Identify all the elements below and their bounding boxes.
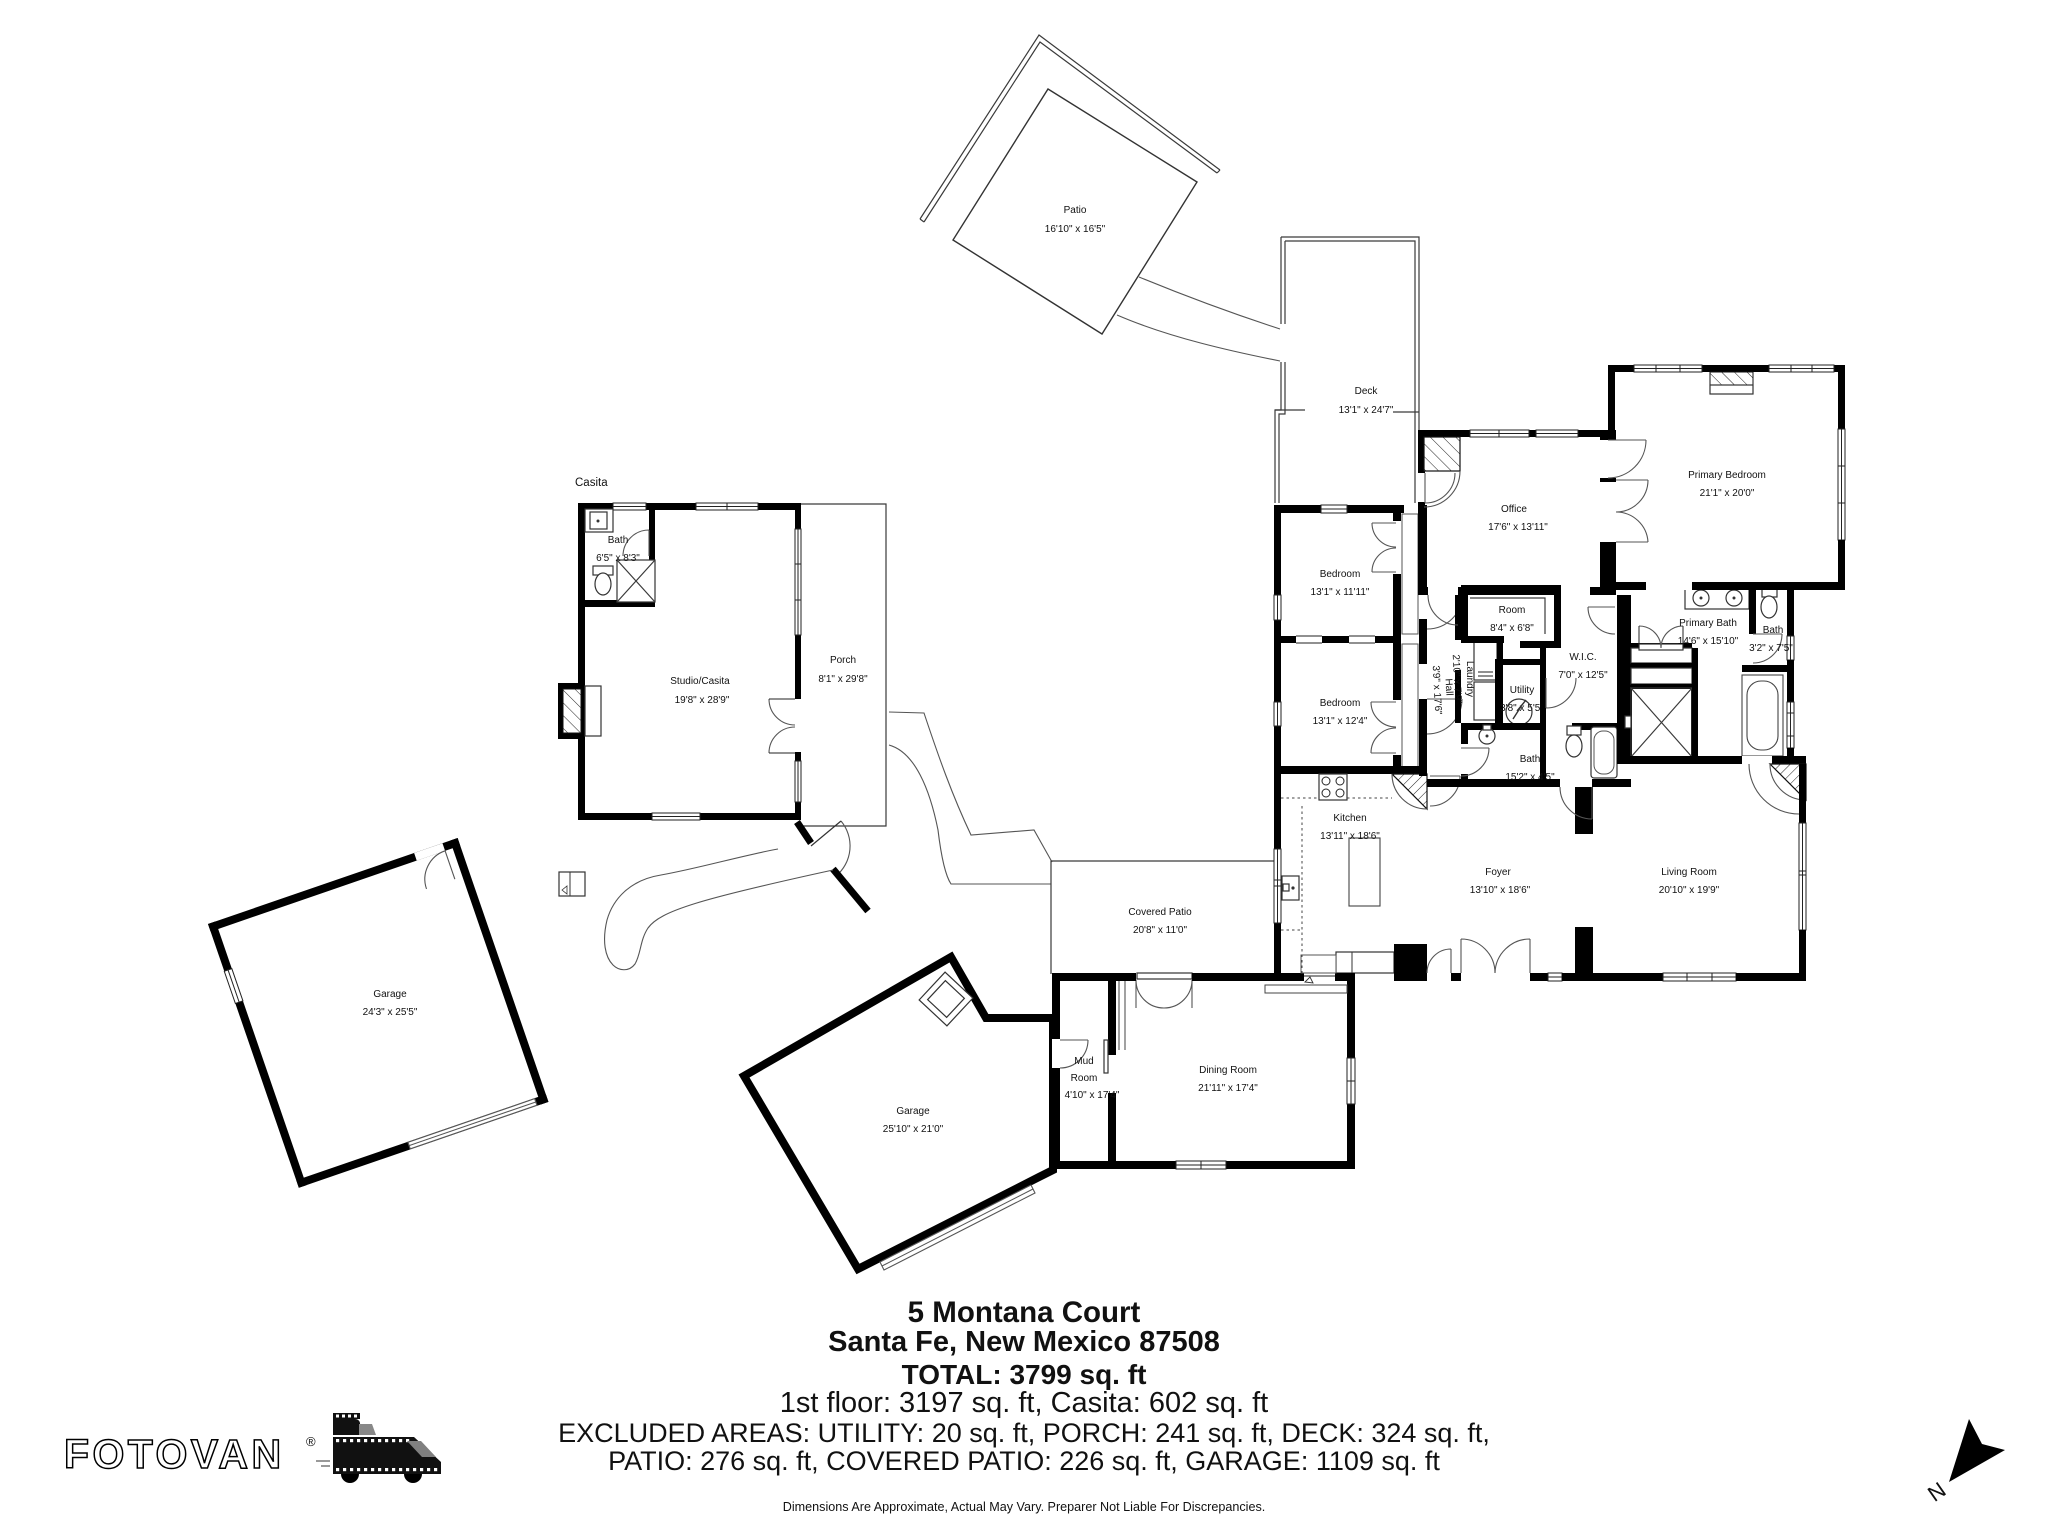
svg-text:Primary Bedroom: Primary Bedroom bbox=[1688, 470, 1766, 481]
svg-text:13'10" x 18'6": 13'10" x 18'6" bbox=[1470, 885, 1531, 896]
svg-text:Garage: Garage bbox=[373, 989, 407, 1000]
svg-text:Porch: Porch bbox=[830, 655, 856, 666]
svg-text:Bedroom: Bedroom bbox=[1320, 569, 1361, 580]
svg-text:5 Montana Court: 5 Montana Court bbox=[908, 1296, 1141, 1329]
svg-text:Bath: Bath bbox=[1520, 754, 1541, 765]
svg-text:Dimensions Are Approximate, Ac: Dimensions Are Approximate, Actual May V… bbox=[783, 1500, 1266, 1514]
svg-text:13'1" x 11'11": 13'1" x 11'11" bbox=[1311, 587, 1370, 598]
svg-text:®: ® bbox=[306, 1434, 316, 1449]
svg-text:1st floor: 3197 sq. ft, Casita: 1st floor: 3197 sq. ft, Casita: 602 sq. … bbox=[780, 1387, 1268, 1419]
svg-text:Covered Patio: Covered Patio bbox=[1128, 907, 1192, 918]
svg-text:17'6" x 13'11": 17'6" x 13'11" bbox=[1488, 522, 1548, 533]
svg-text:Studio/Casita: Studio/Casita bbox=[670, 676, 730, 687]
svg-text:6'5" x 8'3": 6'5" x 8'3" bbox=[596, 553, 640, 564]
svg-text:Kitchen: Kitchen bbox=[1333, 813, 1366, 824]
svg-text:Deck: Deck bbox=[1355, 386, 1379, 397]
svg-text:8'1" x 29'8": 8'1" x 29'8" bbox=[818, 674, 868, 685]
svg-text:Utility: Utility bbox=[1510, 685, 1534, 696]
svg-text:TOTAL: 3799 sq. ft: TOTAL: 3799 sq. ft bbox=[902, 1359, 1147, 1390]
svg-text:Room: Room bbox=[1499, 605, 1526, 616]
svg-text:Bath: Bath bbox=[1763, 625, 1784, 636]
svg-text:Dining Room: Dining Room bbox=[1199, 1065, 1257, 1076]
svg-text:Casita: Casita bbox=[575, 477, 608, 489]
svg-text:Mud: Mud bbox=[1074, 1056, 1093, 1067]
svg-text:Laundry: Laundry bbox=[1464, 661, 1475, 697]
svg-text:21'1" x 20'0": 21'1" x 20'0" bbox=[1700, 488, 1755, 499]
svg-text:Santa Fe, New Mexico 87508: Santa Fe, New Mexico 87508 bbox=[828, 1326, 1220, 1358]
svg-text:20'8" x 11'0": 20'8" x 11'0" bbox=[1133, 925, 1188, 936]
svg-text:Bath: Bath bbox=[608, 535, 629, 546]
svg-text:7'0" x 12'5": 7'0" x 12'5" bbox=[1558, 670, 1608, 681]
svg-text:13'1" x 12'4": 13'1" x 12'4" bbox=[1313, 716, 1368, 727]
svg-text:Patio: Patio bbox=[1064, 205, 1087, 216]
svg-text:19'8" x 28'9": 19'8" x 28'9" bbox=[675, 695, 730, 706]
svg-text:16'10" x 16'5": 16'10" x 16'5" bbox=[1045, 224, 1106, 235]
svg-text:13'11" x 18'6": 13'11" x 18'6" bbox=[1320, 831, 1380, 842]
svg-text:EXCLUDED AREAS: UTILITY: 20 sq: EXCLUDED AREAS: UTILITY: 20 sq. ft, PORC… bbox=[558, 1418, 1490, 1448]
svg-text:PATIO: 276 sq. ft, COVERED PAT: PATIO: 276 sq. ft, COVERED PATIO: 226 sq… bbox=[608, 1446, 1440, 1476]
svg-text:Living Room: Living Room bbox=[1661, 867, 1717, 878]
svg-text:25'10" x 21'0": 25'10" x 21'0" bbox=[883, 1124, 944, 1135]
svg-text:13'1" x 24'7": 13'1" x 24'7" bbox=[1339, 405, 1394, 416]
svg-text:Bedroom: Bedroom bbox=[1320, 698, 1361, 709]
svg-text:15'2" x 4'5": 15'2" x 4'5" bbox=[1505, 772, 1555, 783]
svg-text:14'6" x 15'10": 14'6" x 15'10" bbox=[1678, 636, 1739, 647]
svg-text:W.I.C.: W.I.C. bbox=[1569, 652, 1596, 663]
svg-text:Foyer: Foyer bbox=[1485, 867, 1511, 878]
svg-text:Office: Office bbox=[1501, 504, 1527, 515]
svg-text:Room: Room bbox=[1071, 1073, 1098, 1084]
svg-text:3'2" x 7'5": 3'2" x 7'5" bbox=[1749, 643, 1793, 654]
svg-text:8'4" x 6'8": 8'4" x 6'8" bbox=[1490, 623, 1534, 634]
svg-text:Garage: Garage bbox=[896, 1106, 930, 1117]
svg-text:FOTOVAN: FOTOVAN bbox=[64, 1431, 284, 1477]
svg-text:24'3" x 25'5": 24'3" x 25'5" bbox=[363, 1007, 418, 1018]
svg-text:Primary Bath: Primary Bath bbox=[1679, 618, 1737, 629]
svg-text:20'10" x 19'9": 20'10" x 19'9" bbox=[1659, 885, 1720, 896]
svg-text:4'10" x 17'4": 4'10" x 17'4" bbox=[1065, 1090, 1120, 1101]
svg-text:21'11" x 17'4": 21'11" x 17'4" bbox=[1198, 1083, 1258, 1094]
